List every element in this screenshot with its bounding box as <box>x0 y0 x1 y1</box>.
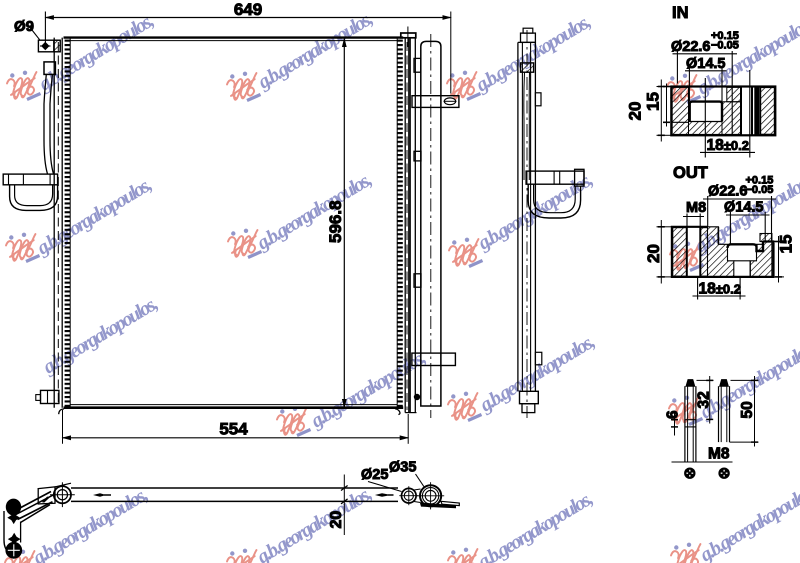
svg-text:20: 20 <box>644 244 663 263</box>
svg-text:M8: M8 <box>686 200 706 216</box>
svg-text:15: 15 <box>777 235 796 254</box>
svg-text:Ø22.6: Ø22.6 <box>708 184 748 200</box>
svg-text:18±0.2: 18±0.2 <box>699 281 741 298</box>
svg-text:Ø35: Ø35 <box>389 460 416 476</box>
svg-text:649: 649 <box>234 0 262 19</box>
svg-text:596.8: 596.8 <box>326 200 345 243</box>
svg-text:IN: IN <box>672 4 689 22</box>
svg-text:20: 20 <box>328 511 345 529</box>
svg-text:M8: M8 <box>708 446 730 463</box>
svg-text:OUT: OUT <box>673 164 708 182</box>
svg-text:20: 20 <box>626 102 645 121</box>
svg-text:32: 32 <box>696 391 713 408</box>
svg-text:50: 50 <box>739 401 756 418</box>
svg-text:−0.05: −0.05 <box>711 40 739 52</box>
svg-text:554: 554 <box>219 420 248 439</box>
svg-text:6: 6 <box>665 410 682 419</box>
svg-text:15: 15 <box>644 92 663 111</box>
svg-text:Ø14.5: Ø14.5 <box>686 56 726 72</box>
svg-text:Ø25: Ø25 <box>361 467 388 483</box>
svg-text:−0.05: −0.05 <box>746 184 774 196</box>
svg-text:18±0.2: 18±0.2 <box>707 137 749 154</box>
svg-text:Ø9: Ø9 <box>14 18 34 35</box>
